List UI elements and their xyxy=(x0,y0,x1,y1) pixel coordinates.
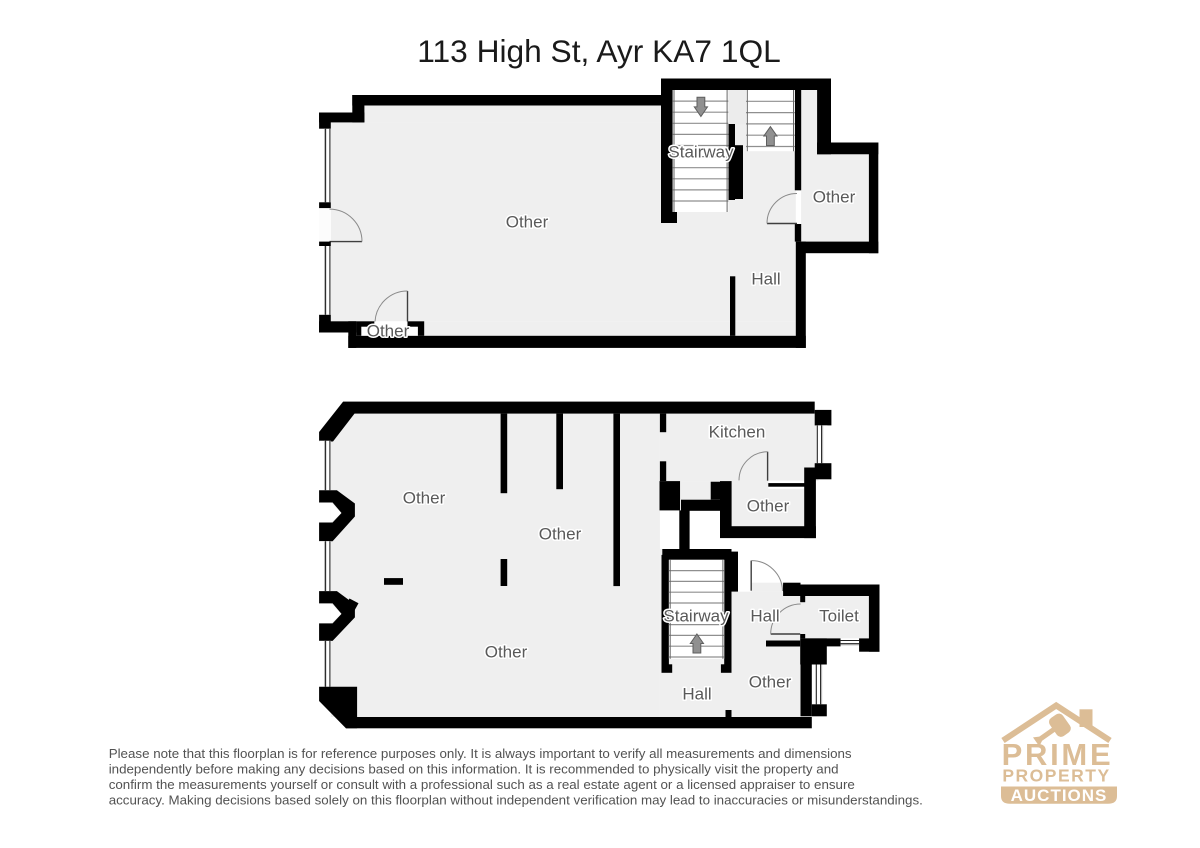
svg-text:Hall: Hall xyxy=(751,270,780,289)
svg-text:accuracy. Making decisions bas: accuracy. Making decisions based solely … xyxy=(109,793,923,808)
svg-text:Other: Other xyxy=(539,525,582,544)
svg-text:Other: Other xyxy=(485,643,528,662)
svg-text:Hall: Hall xyxy=(682,685,711,704)
svg-text:Please note that this floorpla: Please note that this floorplan is for r… xyxy=(109,746,852,761)
svg-text:Kitchen: Kitchen xyxy=(709,423,766,442)
svg-text:Other: Other xyxy=(506,213,549,232)
svg-text:113 High St, Ayr KA7 1QL: 113 High St, Ayr KA7 1QL xyxy=(417,33,780,69)
svg-text:Toilet: Toilet xyxy=(819,607,859,626)
svg-text:Other: Other xyxy=(403,489,446,508)
svg-text:confirm the measurements yours: confirm the measurements yourself or con… xyxy=(109,777,855,792)
svg-text:PROPERTY: PROPERTY xyxy=(1002,766,1110,786)
svg-text:Other: Other xyxy=(367,322,410,341)
svg-text:Other: Other xyxy=(749,673,792,692)
svg-text:AUCTIONS: AUCTIONS xyxy=(1011,786,1108,805)
svg-text:Stairway: Stairway xyxy=(663,607,729,626)
svg-text:independently before making an: independently before making any decision… xyxy=(109,762,839,777)
svg-text:Other: Other xyxy=(747,497,790,516)
svg-text:Other: Other xyxy=(813,188,856,207)
svg-text:Hall: Hall xyxy=(750,607,779,626)
svg-text:Stairway: Stairway xyxy=(668,143,734,162)
